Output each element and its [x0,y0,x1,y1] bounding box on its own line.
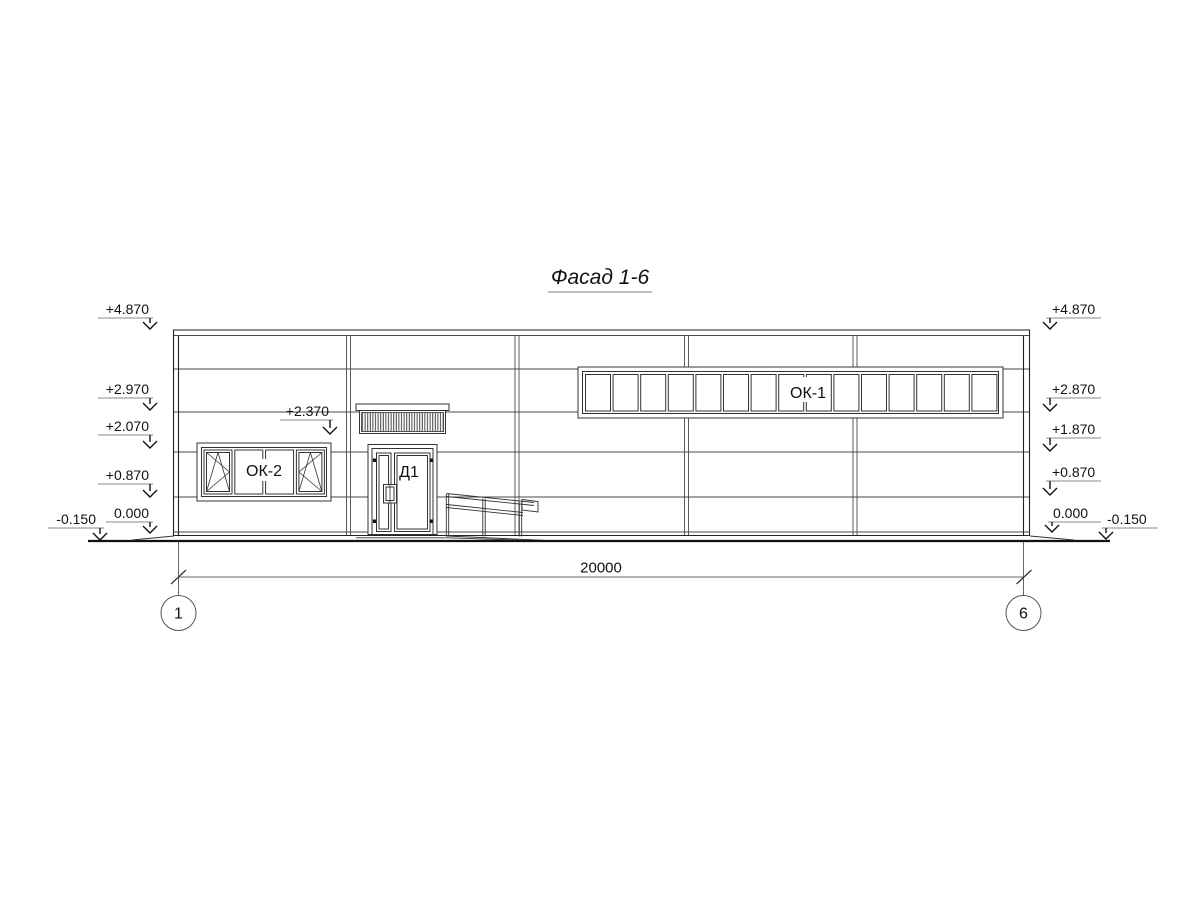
svg-text:+2.070: +2.070 [106,418,149,434]
svg-text:0.000: 0.000 [1053,505,1088,521]
svg-text:+0.870: +0.870 [106,467,149,483]
elevation-marks-right: +4.870 +2.870 +1.870 +0.870 0.000 -0.150 [1043,301,1158,539]
grid-bubble-6: 6 [1006,596,1041,631]
drawing-title: Фасад 1-6 [548,266,652,292]
left-mark-0870: +0.870 [98,467,157,497]
window-ok2: ОК-2 [197,443,331,501]
entrance-canopy [356,404,449,434]
left-mark-2970: +2.970 [98,381,157,410]
facade-drawing: Фасад 1-6 [0,0,1200,900]
elevation-marks-left: +4.870 +2.970 +2.070 +0.870 0.000 -0.150 [48,301,157,540]
svg-text:+4.870: +4.870 [106,301,149,317]
door-d1: Д1 [368,445,437,535]
svg-text:+2.970: +2.970 [106,381,149,397]
door-handle [384,485,397,504]
facade-structure [173,330,1030,536]
left-mark-2070: +2.070 [98,418,157,448]
window-ok1: ОК-1 [578,367,1003,418]
ground-line [88,536,1110,541]
canopy-elevation-mark: +2.370 [280,403,337,434]
left-mark-4870: +4.870 [98,301,157,329]
svg-text:+4.870: +4.870 [1052,301,1095,317]
right-mark-0000: 0.000 [1045,505,1101,532]
svg-text:+2.870: +2.870 [1052,381,1095,397]
svg-text:+0.870: +0.870 [1052,464,1095,480]
right-mark-2870: +2.870 [1043,381,1101,411]
svg-text:+2.370: +2.370 [286,403,329,419]
dimension-group: 20000 1 6 [161,542,1041,631]
left-mark-0000: 0.000 [106,505,157,533]
svg-text:0.000: 0.000 [114,505,149,521]
left-mark-minus0150: -0.150 [48,511,107,540]
grid-axis-1-label: 1 [174,606,183,623]
page-title: Фасад 1-6 [551,266,650,289]
right-mark-4870: +4.870 [1043,301,1101,329]
louver-grille [362,413,444,432]
drawing-sheet: Фасад 1-6 [0,0,1200,900]
svg-text:+1.870: +1.870 [1052,421,1095,437]
door-d1-label: Д1 [399,464,419,481]
window-ok2-label: ОК-2 [246,463,282,480]
grid-bubble-1: 1 [161,596,196,631]
window-ok1-label: ОК-1 [790,385,826,402]
total-dimension-label: 20000 [580,560,622,577]
right-mark-0870: +0.870 [1043,464,1101,495]
right-mark-1870: +1.870 [1043,421,1101,451]
svg-text:-0.150: -0.150 [1107,511,1147,527]
grid-axis-6-label: 6 [1019,606,1028,623]
right-mark-minus0150: -0.150 [1099,511,1158,539]
svg-text:-0.150: -0.150 [56,511,96,527]
